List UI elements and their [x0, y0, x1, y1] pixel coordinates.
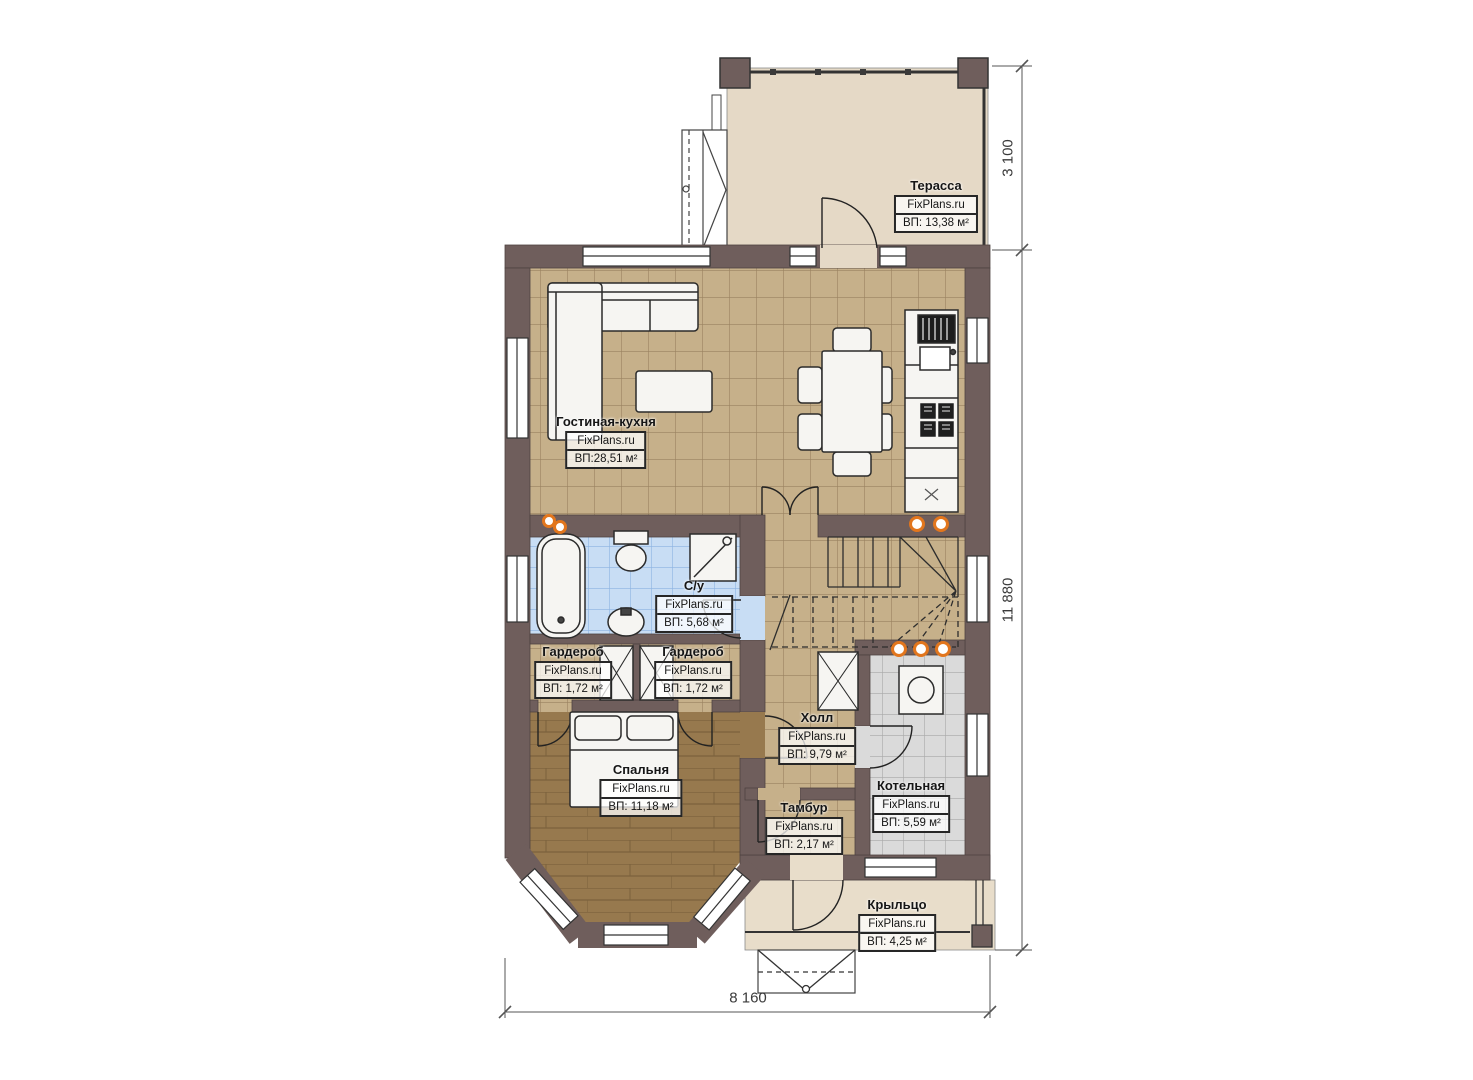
window-bay-bottom	[604, 925, 668, 945]
hall-shaft	[818, 652, 858, 710]
dimension-house-length: 11 880	[1000, 578, 1017, 623]
wall-wardrobe-divider	[633, 644, 640, 700]
room-info-box: FixPlans.ru ВП: 5,68 м²	[655, 595, 733, 633]
chair	[798, 414, 822, 450]
room-area: ВП: 9,79 м²	[780, 747, 854, 763]
entrance-door-opening	[790, 855, 843, 880]
room-info-box: FixPlans.ru ВП: 11,18 м²	[599, 779, 682, 817]
window-boiler-right	[967, 714, 988, 776]
room-info-box: FixPlans.ru ВП: 13,38 м²	[894, 195, 978, 233]
room-site: FixPlans.ru	[874, 797, 948, 815]
wall-wardrobe-bedroom-1	[530, 700, 538, 712]
window-sidelight-left	[790, 247, 816, 266]
boiler-door-opening	[855, 726, 870, 768]
toilet-icon	[614, 531, 648, 571]
pillow	[575, 716, 621, 740]
radiator-icon	[937, 643, 950, 656]
radiator-icon	[555, 522, 566, 533]
vestibule-door-opening	[758, 788, 800, 800]
wall-wardrobe-bedroom-2	[572, 700, 678, 712]
room-label-wardrobe-right: Гардероб FixPlans.ru ВП: 1,72 м²	[654, 644, 732, 699]
room-label-porch: Крыльцо FixPlans.ru ВП: 4,25 м²	[858, 897, 936, 952]
wall-hall-west-2	[740, 640, 765, 712]
room-area: ВП: 2,17 м²	[767, 837, 841, 853]
wall-hall-west-3	[740, 758, 765, 855]
floor-plan: Терасса FixPlans.ru ВП: 13,38 м² Гостина…	[0, 0, 1473, 1080]
room-site: FixPlans.ru	[780, 729, 854, 747]
radiator-icon	[911, 518, 924, 531]
room-label-bedroom: Спальня FixPlans.ru ВП: 11,18 м²	[599, 762, 682, 817]
room-name: Котельная	[872, 778, 950, 793]
room-label-vestibule: Тамбур FixPlans.ru ВП: 2,17 м²	[765, 800, 843, 855]
dining-table	[822, 351, 882, 452]
room-label-wardrobe-left: Гардероб FixPlans.ru ВП: 1,72 м²	[534, 644, 612, 699]
porch-post	[972, 925, 992, 947]
dimension-house-width: 8 160	[729, 990, 767, 1007]
room-info-box: FixPlans.ru ВП: 4,25 м²	[858, 914, 936, 952]
room-label-hall: Холл FixPlans.ru ВП: 9,79 м²	[778, 710, 856, 765]
window-kitchen-right	[967, 318, 988, 363]
room-area: ВП: 1,72 м²	[656, 681, 730, 697]
floor-plan-drawing	[0, 0, 1473, 1080]
wall-hall-vestibule-1	[745, 788, 758, 800]
terrace-post-left	[720, 58, 750, 88]
wall-wardrobe-bedroom-3	[712, 700, 740, 712]
coffee-table	[636, 371, 712, 412]
room-info-box: FixPlans.ru ВП: 9,79 м²	[778, 727, 856, 765]
room-label-bathroom: С/у FixPlans.ru ВП: 5,68 м²	[655, 578, 733, 633]
kitchen-counter	[905, 310, 958, 512]
room-info-box: FixPlans.ru ВП: 5,59 м²	[872, 795, 950, 833]
room-area: ВП:28,51 м²	[568, 451, 645, 467]
room-name: Холл	[778, 710, 856, 725]
radiator-icon	[544, 516, 555, 527]
room-area: ВП: 5,59 м²	[874, 815, 948, 831]
window-sidelight-right	[880, 247, 906, 266]
window-stairs-right	[967, 556, 988, 622]
room-area: ВП: 13,38 м²	[896, 215, 976, 231]
dimension-terrace-depth: 3 100	[1000, 139, 1017, 177]
wall-hall-west-1	[740, 515, 765, 596]
radiator-icon	[935, 518, 948, 531]
room-label-terrace: Терасса FixPlans.ru ВП: 13,38 м²	[894, 178, 978, 233]
room-site: FixPlans.ru	[601, 781, 680, 799]
room-site: FixPlans.ru	[860, 916, 934, 934]
room-area: ВП: 5,68 м²	[657, 615, 731, 631]
room-info-box: FixPlans.ru ВП: 2,17 м²	[765, 817, 843, 855]
room-area: ВП: 4,25 м²	[860, 934, 934, 950]
room-site: FixPlans.ru	[767, 819, 841, 837]
room-area: ВП: 1,72 м²	[536, 681, 610, 697]
bedroom-door-opening	[740, 712, 765, 758]
room-name: Гостиная-кухня	[556, 414, 656, 429]
window-living-top	[583, 247, 710, 266]
wall-hall-boiler-2	[855, 768, 870, 855]
room-site: FixPlans.ru	[656, 663, 730, 681]
fridge-icon	[918, 315, 955, 343]
bath-sink-icon	[608, 608, 644, 636]
room-info-box: FixPlans.ru ВП: 1,72 м²	[534, 661, 612, 699]
chair	[798, 367, 822, 403]
terrace-door-opening	[820, 245, 877, 268]
radiator-icon	[915, 643, 928, 656]
room-info-box: FixPlans.ru ВП:28,51 м²	[566, 431, 647, 469]
room-site: FixPlans.ru	[896, 197, 976, 215]
room-site: FixPlans.ru	[568, 433, 645, 451]
room-name: С/у	[655, 578, 733, 593]
porch-steps	[758, 950, 855, 993]
room-label-living-kitchen: Гостиная-кухня FixPlans.ru ВП:28,51 м²	[556, 414, 656, 469]
room-name: Крыльцо	[858, 897, 936, 912]
terrace-steps	[682, 130, 727, 248]
washing-machine-icon	[690, 534, 736, 581]
boiler-unit	[899, 666, 943, 714]
room-area: ВП: 11,18 м²	[601, 799, 680, 815]
room-site: FixPlans.ru	[536, 663, 610, 681]
room-name: Гардероб	[534, 644, 612, 659]
bathtub	[537, 534, 585, 638]
window-bath-left	[507, 556, 528, 622]
window-boiler-bottom	[865, 858, 936, 877]
wall-hall-vestibule-2	[800, 788, 855, 800]
bath-door-opening	[740, 596, 765, 640]
room-name: Терасса	[894, 178, 978, 193]
chair	[833, 328, 871, 352]
terrace-post-right	[958, 58, 988, 88]
window-living-left	[507, 338, 528, 438]
chair	[833, 452, 871, 476]
kitchen-sink-icon	[920, 347, 956, 370]
room-info-box: FixPlans.ru ВП: 1,72 м²	[654, 661, 732, 699]
room-name: Спальня	[599, 762, 682, 777]
pillow	[627, 716, 673, 740]
room-label-boiler-room: Котельная FixPlans.ru ВП: 5,59 м²	[872, 778, 950, 833]
room-name: Гардероб	[654, 644, 732, 659]
radiator-icon	[893, 643, 906, 656]
room-name: Тамбур	[765, 800, 843, 815]
wall-top	[505, 245, 990, 268]
room-site: FixPlans.ru	[657, 597, 731, 615]
